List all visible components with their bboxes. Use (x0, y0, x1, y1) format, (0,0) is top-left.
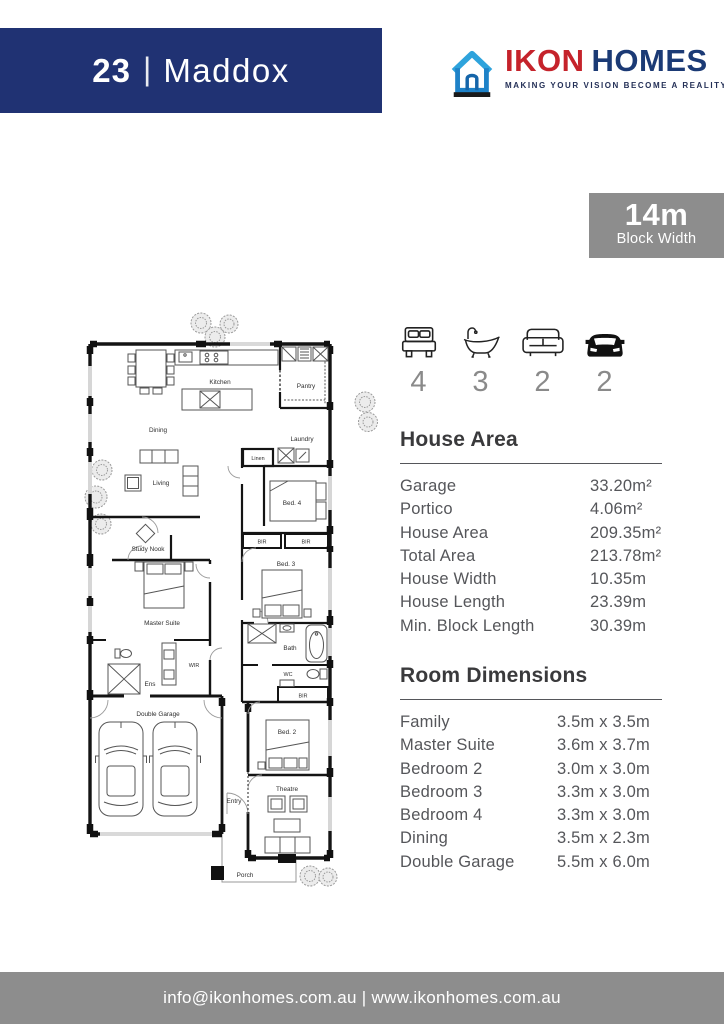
spec-label: Min. Block Length (400, 617, 590, 636)
table-row: Family3.5m x 3.5m (400, 713, 662, 736)
spec-label: Bedroom 3 (400, 783, 557, 802)
room-label-study-nook: Study Nook (131, 546, 165, 553)
spec-value: 209.35m² (590, 524, 661, 543)
brochure-page: 23 | Maddox IKONHOMES MAKING YOUR VISION… (0, 0, 724, 1024)
bath-icon (461, 325, 501, 361)
table-row: House Area209.35m² (400, 524, 662, 547)
table-row: Master Suite3.6m x 3.7m (400, 736, 662, 759)
room-label-bed4: Bed. 4 (283, 500, 302, 507)
bedrooms-count: 4 (410, 366, 427, 399)
spec-value: 3.3m x 3.0m (557, 806, 650, 825)
stat-bedrooms: 4 (393, 325, 445, 399)
house-logo-icon (447, 44, 497, 105)
table-row: Garage33.20m² (400, 477, 662, 500)
spec-label: Master Suite (400, 736, 557, 755)
bed-icon (398, 325, 440, 361)
table-row: House Width10.35m (400, 570, 662, 593)
spec-value: 3.3m x 3.0m (557, 783, 650, 802)
room-label-laundry: Laundry (290, 436, 314, 443)
spec-value: 23.39m (590, 593, 646, 612)
room-label-bir: BIR (302, 540, 311, 546)
room-label-porch: Porch (237, 872, 254, 879)
living-areas-count: 2 (534, 366, 551, 399)
spec-value: 30.39m (590, 617, 646, 636)
stats-row: 4 3 (393, 325, 631, 399)
spec-value: 5.5m x 6.0m (557, 853, 650, 872)
brand-homes: HOMES (592, 43, 708, 78)
house-area-title: House Area (400, 428, 662, 452)
room-label-bir: BIR (299, 694, 308, 700)
room-label-pantry: Pantry (297, 383, 316, 390)
room-label-entry: Entry (227, 798, 243, 805)
room-label-wir: WIR (189, 663, 200, 669)
spec-value: 3.6m x 3.7m (557, 736, 650, 755)
table-row: Bedroom 33.3m x 3.0m (400, 783, 662, 806)
stat-living-areas: 2 (517, 325, 569, 399)
table-row: Dining3.5m x 2.3m (400, 829, 662, 852)
spec-label: House Area (400, 524, 590, 543)
spec-value: 3.5m x 2.3m (557, 829, 650, 848)
spec-value: 33.20m² (590, 477, 652, 496)
car-icon (584, 325, 626, 361)
table-row: Total Area213.78m² (400, 547, 662, 570)
table-row: Portico4.06m² (400, 500, 662, 523)
room-label-bed2: Bed. 2 (278, 729, 297, 736)
stat-bathrooms: 3 (455, 325, 507, 399)
plan-title-banner: 23 | Maddox (0, 28, 382, 113)
footer-bar: info@ikonhomes.com.au | www.ikonhomes.co… (0, 972, 724, 1024)
room-dimensions-section: Room Dimensions Family3.5m x 3.5m Master… (400, 664, 662, 876)
table-row: Bedroom 43.3m x 3.0m (400, 806, 662, 829)
block-width-value: 14m (589, 198, 724, 231)
title-separator: | (143, 51, 151, 88)
spec-value: 3.5m x 3.5m (557, 713, 650, 732)
spec-label: Garage (400, 477, 590, 496)
spec-label: Total Area (400, 547, 590, 566)
room-label-bath: Bath (283, 645, 297, 652)
spec-value: 4.06m² (590, 500, 643, 519)
divider (400, 463, 662, 464)
room-label-master-suite: Master Suite (144, 620, 180, 627)
table-row: Double Garage5.5m x 6.0m (400, 853, 662, 876)
floor-plan: Kitchen Pantry Dining Living Laundry Lin… (82, 310, 382, 890)
spec-value: 3.0m x 3.0m (557, 760, 650, 779)
spec-label: Portico (400, 500, 590, 519)
footer-contact[interactable]: info@ikonhomes.com.au | www.ikonhomes.co… (163, 988, 561, 1008)
plan-number: 23 (92, 52, 131, 90)
spec-label: Dining (400, 829, 557, 848)
room-label-linen: Linen (251, 456, 264, 462)
plan-name: Maddox (163, 52, 289, 90)
divider (400, 699, 662, 700)
table-row: Min. Block Length30.39m (400, 617, 662, 640)
room-dimensions-title: Room Dimensions (400, 664, 662, 688)
room-label-kitchen: Kitchen (209, 379, 231, 386)
room-label-bir: BIR (258, 540, 267, 546)
brand-name: IKONHOMES (505, 44, 724, 78)
spec-label: Family (400, 713, 557, 732)
room-label-living: Living (153, 480, 170, 487)
company-logo: IKONHOMES MAKING YOUR VISION BECOME A RE… (447, 44, 724, 105)
spec-label: Bedroom 2 (400, 760, 557, 779)
room-label-double-garage: Double Garage (136, 711, 180, 718)
room-label-dining: Dining (149, 427, 168, 434)
block-width-badge: 14m Block Width (589, 193, 724, 258)
spec-value: 213.78m² (590, 547, 661, 566)
room-label-ens: Ens (144, 681, 155, 688)
table-row: Bedroom 23.0m x 3.0m (400, 760, 662, 783)
garage-count: 2 (596, 366, 613, 399)
table-row: House Length23.39m (400, 593, 662, 616)
spec-label: Bedroom 4 (400, 806, 557, 825)
sofa-icon (521, 325, 565, 361)
house-area-section: House Area Garage33.20m² Portico4.06m² H… (400, 428, 662, 640)
spec-label: Double Garage (400, 853, 557, 872)
stat-garage: 2 (579, 325, 631, 399)
brand-ikon: IKON (505, 43, 585, 78)
room-label-bed3: Bed. 3 (277, 561, 296, 568)
spec-value: 10.35m (590, 570, 646, 589)
bathrooms-count: 3 (472, 366, 489, 399)
brand-tagline: MAKING YOUR VISION BECOME A REALITY (505, 81, 724, 90)
block-width-label: Block Width (589, 231, 724, 247)
room-label-wc: WC (284, 672, 293, 678)
room-label-theatre: Theatre (276, 786, 298, 793)
spec-label: House Width (400, 570, 590, 589)
spec-label: House Length (400, 593, 590, 612)
